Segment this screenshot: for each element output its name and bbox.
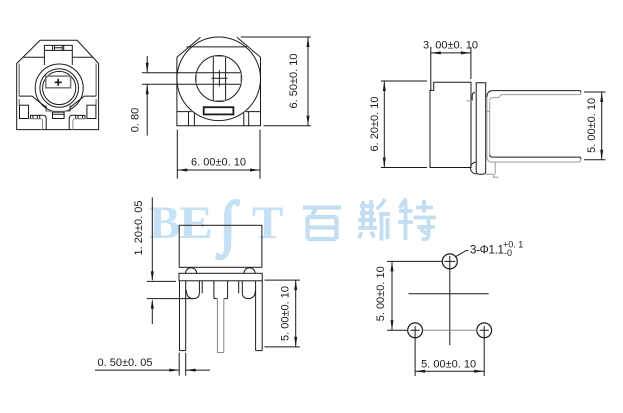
svg-text:6. 00±0. 10: 6. 00±0. 10 <box>191 157 246 169</box>
svg-text:B: B <box>149 197 180 249</box>
svg-text:5. 00±0. 10: 5. 00±0. 10 <box>280 286 292 341</box>
svg-text:0. 80: 0. 80 <box>130 108 142 132</box>
svg-text:3. 00±0. 10: 3. 00±0. 10 <box>423 40 478 52</box>
svg-text:6. 50±0. 10: 6. 50±0. 10 <box>288 54 300 109</box>
svg-text:5. 00±0. 10: 5. 00±0. 10 <box>586 98 598 153</box>
svg-text:1. 20±0. 05: 1. 20±0. 05 <box>133 201 145 256</box>
svg-text:3-Φ1.1: 3-Φ1.1 <box>470 244 504 256</box>
svg-text:0. 50±0. 05: 0. 50±0. 05 <box>98 357 153 369</box>
svg-text:5. 00±0. 10: 5. 00±0. 10 <box>421 358 476 370</box>
svg-text:T: T <box>252 197 283 249</box>
svg-text:-0: -0 <box>504 248 512 258</box>
svg-text:E: E <box>179 196 213 249</box>
svg-text:5. 00±0. 10: 5. 00±0. 10 <box>375 266 387 321</box>
svg-text:6. 20±0. 10: 6. 20±0. 10 <box>369 97 381 152</box>
